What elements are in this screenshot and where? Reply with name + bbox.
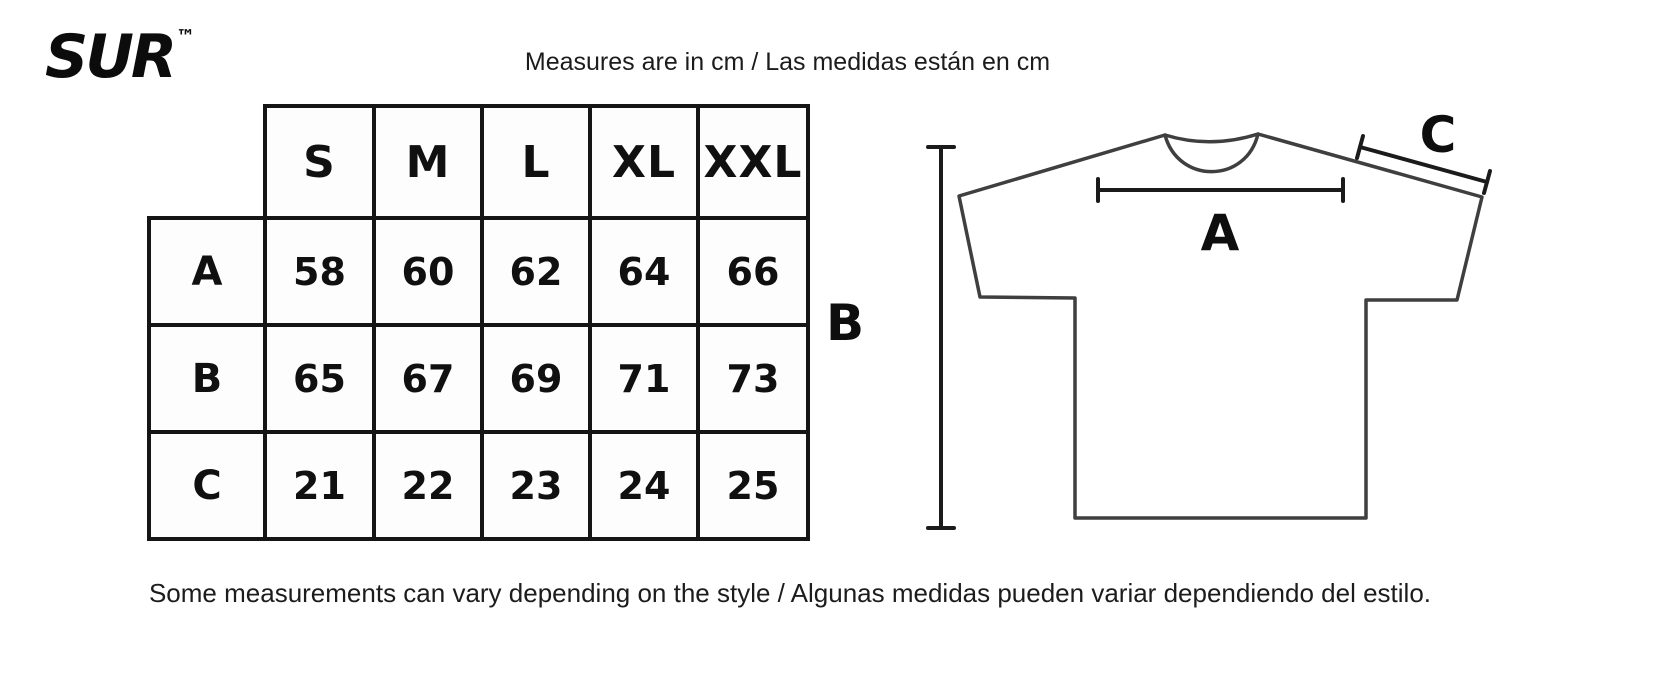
size-value-cell: 22 [374, 432, 482, 539]
size-value-cell: 23 [482, 432, 590, 539]
size-value-cell: 60 [374, 218, 482, 325]
size-column-header: L [482, 106, 590, 218]
measurement-row-label: B [149, 325, 265, 432]
measure-label-c: C [1420, 106, 1457, 164]
size-value-cell: 62 [482, 218, 590, 325]
measurement-row-label: A [149, 218, 265, 325]
size-value-cell: 67 [374, 325, 482, 432]
table-row: C 21 22 23 24 25 [149, 432, 808, 539]
measure-label-b: B [826, 294, 864, 352]
size-value-cell: 65 [265, 325, 374, 432]
size-value-cell: 64 [590, 218, 698, 325]
size-value-cell: 69 [482, 325, 590, 432]
measure-label-a: A [1201, 204, 1240, 262]
size-value-cell: 58 [265, 218, 374, 325]
measurement-row-label: C [149, 432, 265, 539]
measure-line-b [928, 147, 954, 528]
corner-cell [149, 106, 265, 218]
size-chart-header-row: S M L XL XXL [149, 106, 808, 218]
size-value-cell: 21 [265, 432, 374, 539]
size-value-cell: 24 [590, 432, 698, 539]
size-column-header: XXL [698, 106, 808, 218]
size-value-cell: 25 [698, 432, 808, 539]
units-note: Measures are in cm / Las medidas están e… [0, 48, 1575, 77]
tshirt-diagram: A B C [800, 100, 1560, 560]
size-column-header: M [374, 106, 482, 218]
disclaimer-note: Some measurements can vary depending on … [0, 578, 1580, 609]
size-value-cell: 71 [590, 325, 698, 432]
size-column-header: XL [590, 106, 698, 218]
size-chart-table: S M L XL XXL A 58 60 62 64 66 B 65 67 69… [147, 104, 810, 541]
size-value-cell: 73 [698, 325, 808, 432]
size-column-header: S [265, 106, 374, 218]
table-row: B 65 67 69 71 73 [149, 325, 808, 432]
size-value-cell: 66 [698, 218, 808, 325]
table-row: A 58 60 62 64 66 [149, 218, 808, 325]
trademark-symbol: ™ [176, 26, 195, 48]
